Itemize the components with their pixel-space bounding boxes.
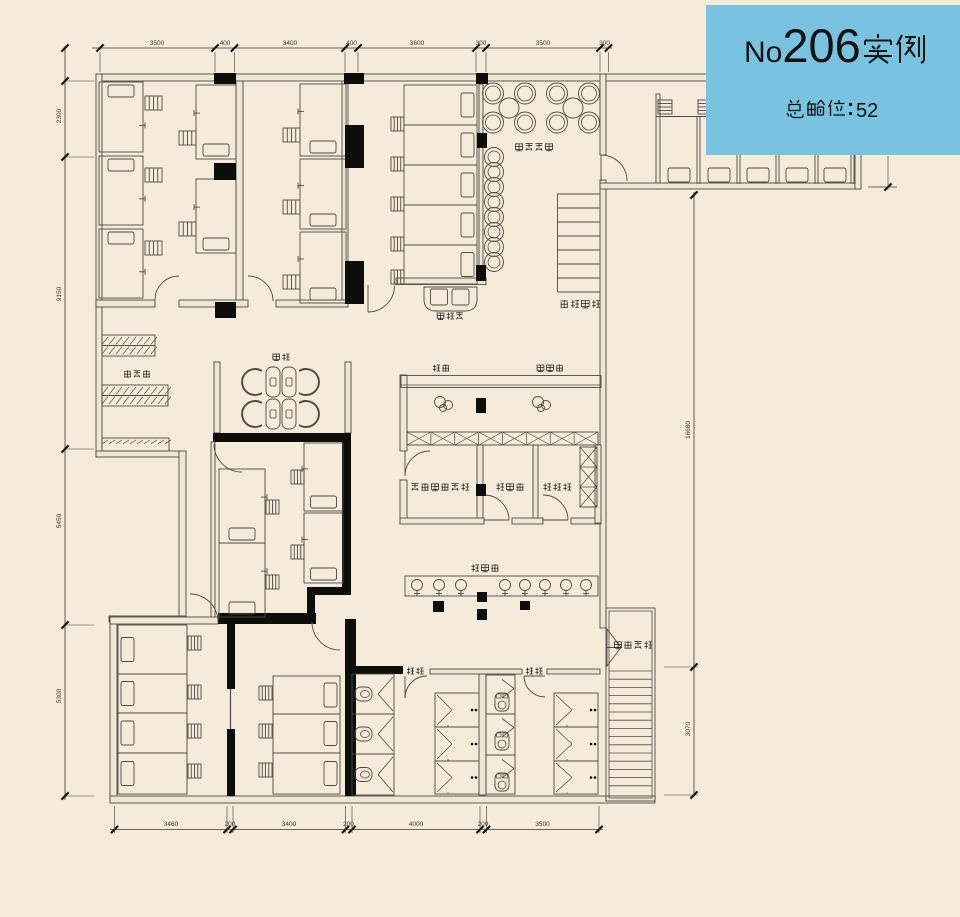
svg-text:400: 400 xyxy=(346,40,357,47)
svg-text:3400: 3400 xyxy=(283,40,298,47)
svg-text:16680: 16680 xyxy=(685,421,692,439)
svg-text:400: 400 xyxy=(220,40,231,47)
svg-text:300: 300 xyxy=(599,40,610,47)
svg-text:200: 200 xyxy=(343,821,354,828)
svg-text:3460: 3460 xyxy=(164,821,179,828)
svg-text:5300: 5300 xyxy=(56,688,63,703)
svg-text:300: 300 xyxy=(476,40,487,47)
svg-text:3600: 3600 xyxy=(410,40,425,47)
svg-text:3500: 3500 xyxy=(150,40,165,47)
svg-text:9150: 9150 xyxy=(56,286,63,301)
svg-text:2300: 2300 xyxy=(56,108,63,123)
svg-text:3400: 3400 xyxy=(282,821,297,828)
svg-text:200: 200 xyxy=(225,821,236,828)
svg-text:3070: 3070 xyxy=(685,721,692,736)
svg-text:52: 52 xyxy=(856,100,878,122)
svg-text:200: 200 xyxy=(478,821,489,828)
svg-text:3500: 3500 xyxy=(536,40,551,47)
svg-text:5450: 5450 xyxy=(56,513,63,528)
svg-text:4000: 4000 xyxy=(409,821,424,828)
svg-text:3500: 3500 xyxy=(535,821,550,828)
